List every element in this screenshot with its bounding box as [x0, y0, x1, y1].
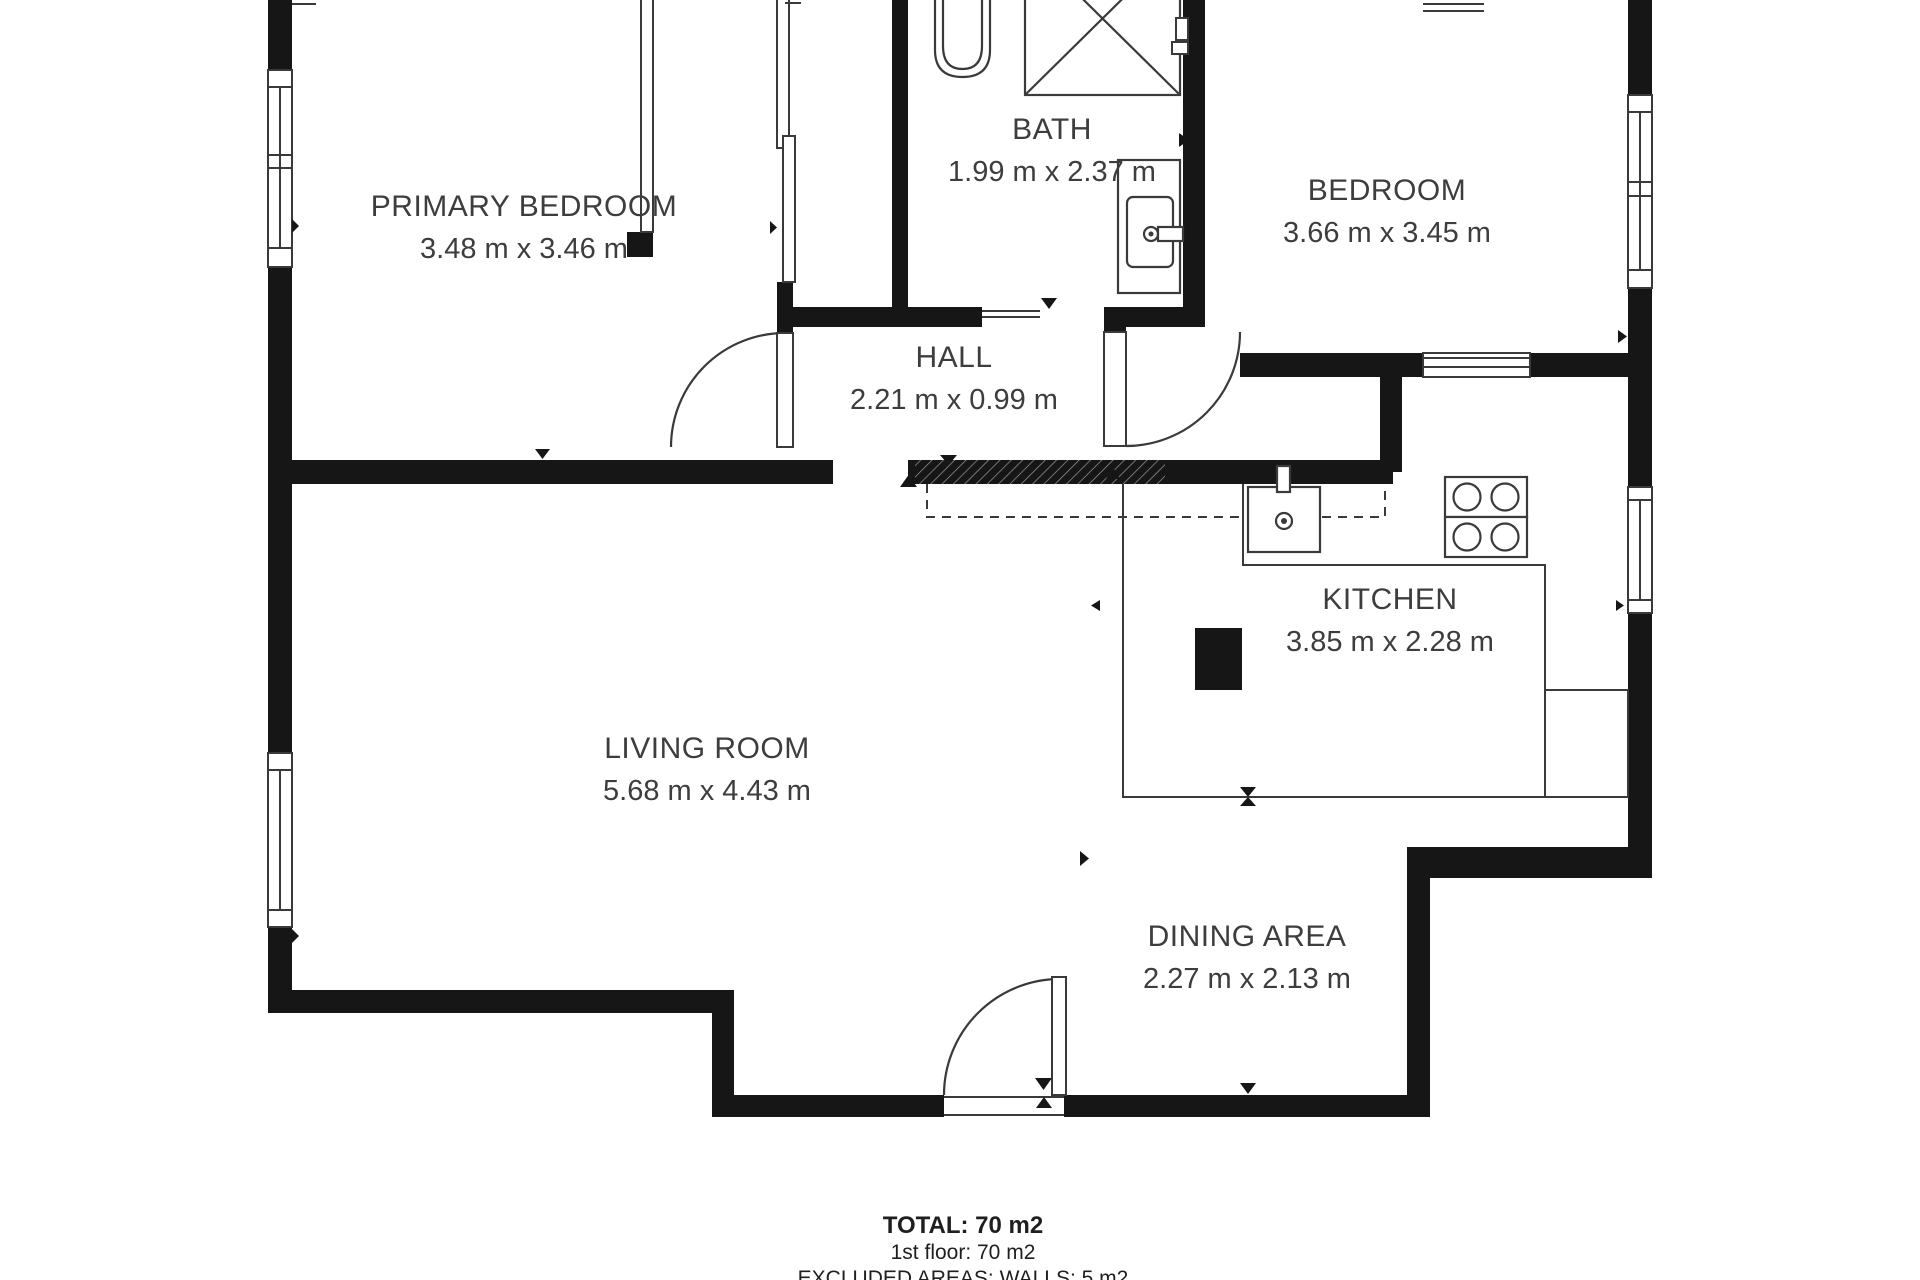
wall-bedroom-bottom-1: [1240, 353, 1423, 377]
top-edge-stubs: [292, 3, 1484, 11]
summary-floor: 1st floor: 70 m2: [798, 1240, 1129, 1266]
wall-left-middle: [268, 267, 292, 753]
door-entrance: [944, 977, 1066, 1117]
room-label-bedroom: BEDROOM 3.66 m x 3.45 m: [1283, 170, 1491, 254]
wall-primary-door-cap: [777, 282, 793, 333]
room-name: BEDROOM: [1283, 170, 1491, 212]
room-name: PRIMARY BEDROOM: [371, 186, 677, 228]
room-label-bath: BATH 1.99 m x 2.37 m: [948, 109, 1156, 193]
summary-excluded: EXCLUDED AREAS: WALLS: 5 m2: [798, 1266, 1129, 1280]
sliding-door-panel-1: [777, 0, 789, 148]
room-dimensions: 1.99 m x 2.37 m: [948, 151, 1156, 193]
room-name: BATH: [948, 109, 1156, 151]
wall-kitchen-top-hatch: [915, 460, 1165, 484]
summary-total: TOTAL: 70 m2: [798, 1212, 1129, 1240]
marker-arrow: [1616, 600, 1624, 611]
marker-arrow: [292, 929, 299, 943]
sill-bedroom-bottom: [1423, 353, 1530, 377]
threshold-bath: [982, 307, 1040, 327]
room-label-living-room: LIVING ROOM 5.68 m x 4.43 m: [603, 728, 811, 812]
marker-arrow: [1618, 330, 1627, 343]
marker-arrow: [1041, 298, 1057, 309]
room-dimensions: 3.48 m x 3.46 m: [371, 228, 677, 270]
room-label-primary-bedroom: PRIMARY BEDROOM 3.48 m x 3.46 m: [371, 186, 677, 270]
marker-arrow: [1080, 851, 1089, 866]
door-primary-bedroom: [671, 333, 793, 447]
stove-fixture: [1445, 477, 1527, 557]
room-dimensions: 5.68 m x 4.43 m: [603, 770, 811, 812]
wall-bottom-step: [712, 990, 734, 1117]
marker-arrow: [770, 221, 777, 234]
wall-bottom-a: [268, 990, 714, 1013]
sliding-door-panel-2: [783, 136, 795, 282]
wall-bottom-b1: [734, 1095, 944, 1117]
kitchen-island-block: [1195, 628, 1242, 690]
wall-dining-horizontal: [1407, 847, 1650, 878]
wall-right-top: [1628, 0, 1652, 95]
toilet-fixture: [935, 0, 990, 77]
marker-arrow: [535, 449, 550, 459]
room-name: LIVING ROOM: [603, 728, 811, 770]
window-kitchen: [1628, 487, 1652, 613]
door-bedroom: [1104, 332, 1240, 446]
floorplan-image: PRIMARY BEDROOM 3.48 m x 3.46 m BATH 1.9…: [0, 0, 1920, 1280]
room-dimensions: 2.27 m x 2.13 m: [1143, 958, 1351, 1000]
wall-left-top: [268, 0, 292, 70]
room-dimensions: 3.66 m x 3.45 m: [1283, 212, 1491, 254]
room-name: KITCHEN: [1286, 579, 1494, 621]
wall-corner-block: [1104, 307, 1126, 332]
wall-right-middle: [1628, 288, 1652, 487]
wall-right-bottom: [1628, 613, 1652, 878]
room-dimensions: 2.21 m x 0.99 m: [850, 379, 1058, 421]
marker-arrow: [1091, 600, 1100, 611]
room-dimensions: 3.85 m x 2.28 m: [1286, 621, 1494, 663]
wall-bottom-b2: [1064, 1095, 1430, 1117]
marker-arrow: [1035, 1078, 1052, 1090]
wall-bath-left: [892, 0, 908, 327]
kitchen-nook-cabinet: [1545, 690, 1628, 797]
wall-living-top: [268, 460, 833, 484]
wall-kitchen-connector: [1380, 377, 1402, 472]
room-label-dining-area: DINING AREA 2.27 m x 2.13 m: [1143, 916, 1351, 1000]
wall-bedroom-bottom-2: [1530, 353, 1628, 377]
room-name: HALL: [850, 337, 1058, 379]
window-bedroom: [1628, 95, 1652, 288]
window-primary-bedroom: [268, 70, 292, 267]
room-label-hall: HALL 2.21 m x 0.99 m: [850, 337, 1058, 421]
marker-arrow: [292, 219, 299, 233]
shower-fixture: [1025, 0, 1188, 95]
room-label-kitchen: KITCHEN 3.85 m x 2.28 m: [1286, 579, 1494, 663]
room-name: DINING AREA: [1143, 916, 1351, 958]
area-summary: TOTAL: 70 m2 1st floor: 70 m2 EXCLUDED A…: [798, 1212, 1129, 1280]
marker-arrow: [1240, 797, 1256, 806]
marker-arrow: [1240, 1083, 1256, 1094]
window-living-room: [268, 753, 292, 927]
wall-dining-vertical: [1407, 847, 1430, 1117]
wall-bath-bottom: [792, 307, 982, 327]
